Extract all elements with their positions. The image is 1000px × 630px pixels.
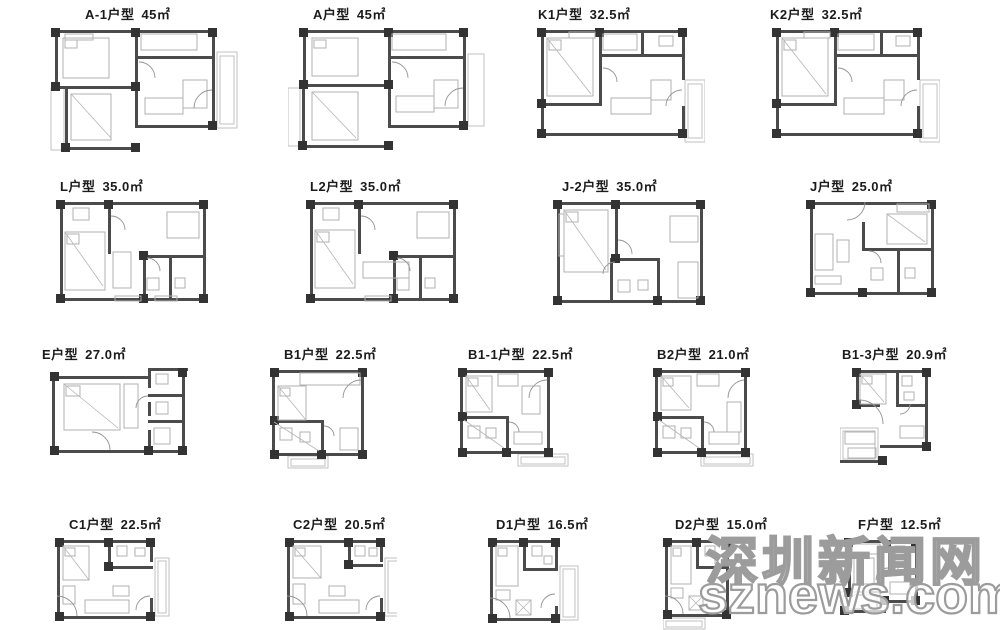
plan-area: 45㎡: [357, 7, 386, 22]
floorplan-drawing-L: [55, 200, 213, 305]
floorplan-drawing-B1: [270, 368, 373, 473]
plan-label-L2: L2户型35.0㎡: [310, 178, 463, 196]
plan-label-B1-3: B1-3户型20.9㎡: [842, 346, 940, 364]
plan-type-name: B1户型: [284, 347, 329, 362]
floorplan-D2: D2户型15.0㎡: [663, 516, 748, 630]
floorplan-drawing-B2: [653, 368, 757, 468]
floorplan-L2: L2户型35.0㎡: [305, 178, 463, 305]
plan-area: 22.5㎡: [532, 347, 573, 362]
plan-type-name: L户型: [60, 179, 95, 194]
plan-area: 16.5㎡: [548, 517, 589, 532]
floorplan-drawing-K1: [533, 28, 705, 146]
plan-area: 35.0㎡: [616, 179, 657, 194]
plan-area: 22.5㎡: [336, 347, 377, 362]
plan-label-J-2: J-2户型35.0㎡: [562, 178, 710, 196]
plan-label-C1: C1户型22.5㎡: [69, 516, 170, 534]
floorplan-B1-1: B1-1户型22.5㎡: [458, 346, 570, 468]
floorplan-drawing-K2: [768, 28, 940, 146]
plan-area: 32.5㎡: [590, 7, 631, 22]
floorplan-C2: C2户型20.5㎡: [285, 516, 397, 626]
plan-label-B2: B2户型21.0㎡: [657, 346, 757, 364]
plan-type-name: J-2户型: [562, 179, 609, 194]
plan-type-name: D1户型: [496, 517, 541, 532]
floorplan-A: A户型45㎡: [288, 6, 485, 155]
floorplan-F: F户型12.5㎡: [840, 516, 935, 616]
floorplan-drawing-J: [805, 200, 939, 300]
plan-type-name: B2户型: [657, 347, 702, 362]
plan-area: 35.0㎡: [102, 179, 143, 194]
plan-type-name: A-1户型: [85, 7, 134, 22]
floorplan-J-2: J-2户型35.0㎡: [552, 178, 710, 307]
plan-type-name: F户型: [858, 517, 893, 532]
plan-label-F: F户型12.5㎡: [858, 516, 935, 534]
plan-area: 45㎡: [141, 7, 170, 22]
plan-label-D1: D1户型16.5㎡: [496, 516, 583, 534]
plan-label-J: J户型25.0㎡: [810, 178, 939, 196]
plan-area: 20.5㎡: [345, 517, 386, 532]
plan-type-name: C2户型: [293, 517, 338, 532]
floorplan-D1: D1户型16.5㎡: [488, 516, 583, 628]
floorplan-B1-3: B1-3户型20.9㎡: [840, 346, 940, 466]
plan-area: 15.0㎡: [727, 517, 768, 532]
plan-label-E: E户型27.0㎡: [42, 346, 190, 364]
floorplan-E: E户型27.0㎡: [50, 346, 190, 458]
floorplan-drawing-D1: [488, 538, 583, 628]
floorplan-drawing-C2: [285, 538, 397, 626]
floorplan-drawing-L2: [305, 200, 463, 305]
plan-label-D2: D2户型15.0㎡: [675, 516, 748, 534]
plan-type-name: K2户型: [770, 7, 815, 22]
floorplan-K2: K2户型32.5㎡: [768, 6, 940, 146]
plan-label-L: L户型35.0㎡: [60, 178, 213, 196]
plan-type-name: J户型: [810, 179, 845, 194]
plan-label-A-1: A-1户型45㎡: [85, 6, 240, 24]
plan-area: 22.5㎡: [121, 517, 162, 532]
plan-type-name: B1-1户型: [468, 347, 525, 362]
plan-label-A: A户型45㎡: [313, 6, 485, 24]
floorplan-K1: K1户型32.5㎡: [533, 6, 705, 146]
floorplan-drawing-B1-3: [840, 368, 940, 466]
plan-label-K2: K2户型32.5㎡: [770, 6, 940, 24]
plan-label-B1-1: B1-1户型22.5㎡: [468, 346, 570, 364]
plan-label-K1: K1户型32.5㎡: [538, 6, 705, 24]
floorplan-drawing-A-1: [35, 28, 240, 155]
plan-type-name: K1户型: [538, 7, 583, 22]
floorplan-drawing-A: [288, 28, 485, 155]
floorplan-B1: B1户型22.5㎡: [270, 346, 373, 473]
floorplan-A-1: A-1户型45㎡: [35, 6, 240, 155]
plan-type-name: A户型: [313, 7, 350, 22]
floorplan-C1: C1户型22.5㎡: [55, 516, 170, 626]
floorplan-drawing-B1-1: [458, 368, 570, 468]
floorplan-drawing-J-2: [552, 200, 710, 307]
plan-area: 21.0㎡: [709, 347, 750, 362]
plan-type-name: B1-3户型: [842, 347, 899, 362]
plan-type-name: L2户型: [310, 179, 353, 194]
plan-type-name: C1户型: [69, 517, 114, 532]
plan-label-B1: B1户型22.5㎡: [284, 346, 373, 364]
plan-area: 32.5㎡: [822, 7, 863, 22]
floorplan-L: L户型35.0㎡: [55, 178, 213, 305]
plan-area: 27.0㎡: [85, 347, 126, 362]
floorplan-drawing-D2: [663, 538, 748, 630]
floorplan-drawing-C1: [55, 538, 170, 626]
plan-area: 25.0㎡: [852, 179, 893, 194]
floorplan-drawing-F: [840, 538, 935, 616]
floorplan-drawing-E: [50, 368, 190, 458]
floorplan-B2: B2户型21.0㎡: [653, 346, 757, 468]
floorplan-grid: A-1户型45㎡A户型45㎡K1户型32.5㎡K2户型32.5㎡L户型35.0㎡…: [0, 0, 1000, 630]
plan-area: 35.0㎡: [360, 179, 401, 194]
floorplan-J: J户型25.0㎡: [805, 178, 939, 300]
plan-label-C2: C2户型20.5㎡: [293, 516, 397, 534]
plan-type-name: D2户型: [675, 517, 720, 532]
plan-area: 20.9㎡: [906, 347, 947, 362]
plan-type-name: E户型: [42, 347, 78, 362]
plan-area: 12.5㎡: [900, 517, 941, 532]
